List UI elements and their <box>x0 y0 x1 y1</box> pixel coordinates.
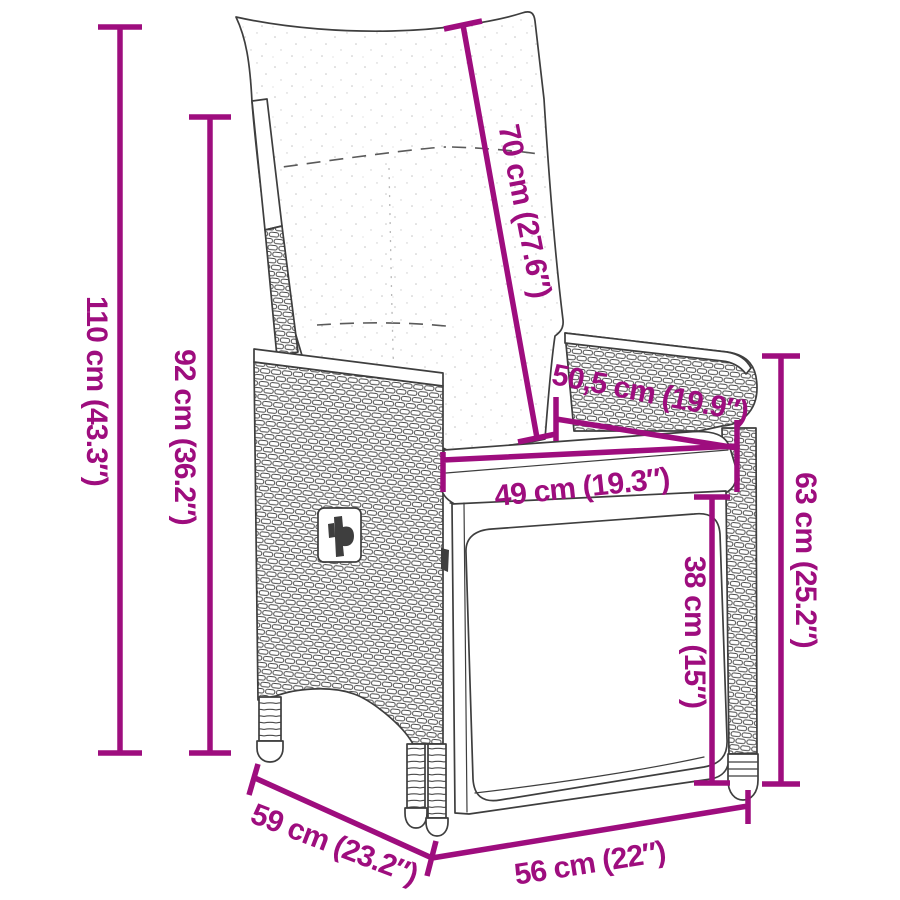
dimension-label-height-side: 63 cm (25.2″) <box>790 472 820 648</box>
hinge-bracket <box>441 548 449 572</box>
dimension-diagram: 110 cm (43.3″) 92 cm (36.2″) 70 cm (27.6… <box>0 0 900 900</box>
recline-lever <box>318 508 361 562</box>
dimension-label-height-total: 110 cm (43.3″) <box>81 296 111 486</box>
dimension-label-height-backrest: 92 cm (36.2″) <box>169 349 199 525</box>
dimension-label-height-footrest: 38 cm (15″) <box>679 556 709 708</box>
diagram-canvas <box>0 0 900 900</box>
